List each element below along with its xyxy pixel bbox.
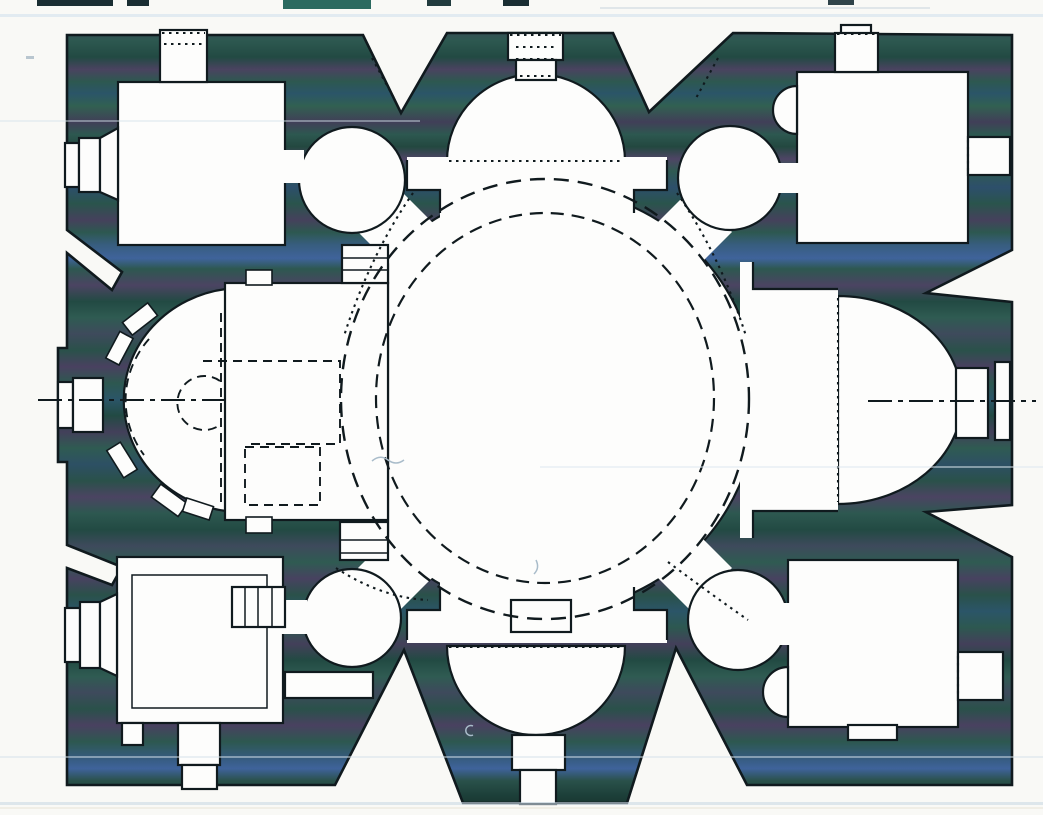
ne-room-east-door: [968, 137, 1010, 175]
sw-circular-chamber: [303, 569, 401, 667]
nw-room-west-door-outer: [65, 143, 79, 187]
sw-room-south-door-outer: [182, 765, 217, 789]
se-room-south-door-stub: [848, 725, 897, 740]
sw-room-south-door-small: [122, 723, 143, 745]
sw-room-west-door-outer: [65, 608, 80, 662]
scan-fragment: [127, 0, 149, 6]
nw-room-west-door-mid: [79, 138, 100, 192]
ne-room-north-door: [835, 33, 878, 72]
west-bay-south-nub: [246, 517, 272, 533]
se-room-east-door: [958, 652, 1003, 700]
scan-speck: [26, 56, 34, 59]
nw-circular-chamber: [299, 127, 405, 233]
church-floor-plan-drawing: [0, 0, 1043, 815]
ne-circular-chamber: [678, 126, 782, 230]
north-bay-opening: [407, 157, 667, 218]
east-axial-door-recess: [956, 368, 988, 438]
sw-room-west-door-mid: [80, 602, 100, 668]
sw-room: [117, 557, 283, 723]
nw-room-west-door-splay: [100, 128, 118, 200]
nw-room-north-door: [160, 30, 207, 82]
west-bay-chamber: [225, 283, 388, 520]
scan-streak: [600, 7, 930, 9]
south-axial-door-inner: [512, 735, 565, 770]
scanned-plan-page: [0, 0, 1043, 815]
scan-fragment: [283, 0, 371, 9]
sw-room-west-door-splay: [100, 594, 117, 676]
west-bay-north-nub: [246, 270, 272, 285]
west-axial-door-inner: [73, 378, 103, 432]
scan-fragment: [37, 0, 113, 6]
ne-room: [797, 72, 968, 243]
scan-fragment: [828, 0, 854, 5]
sw-room-south-door: [178, 723, 220, 765]
east-bay-opening: [740, 262, 838, 538]
altar-slab: [511, 600, 571, 632]
south-axial-door-outer: [520, 770, 556, 804]
west-axial-door-outer: [58, 382, 73, 428]
scan-fragment: [503, 0, 529, 6]
stair-ladder-northwest: [342, 245, 388, 283]
nw-room: [118, 82, 285, 245]
se-room: [788, 560, 958, 727]
south-corridor: [285, 672, 373, 698]
scan-fragment: [427, 0, 451, 6]
